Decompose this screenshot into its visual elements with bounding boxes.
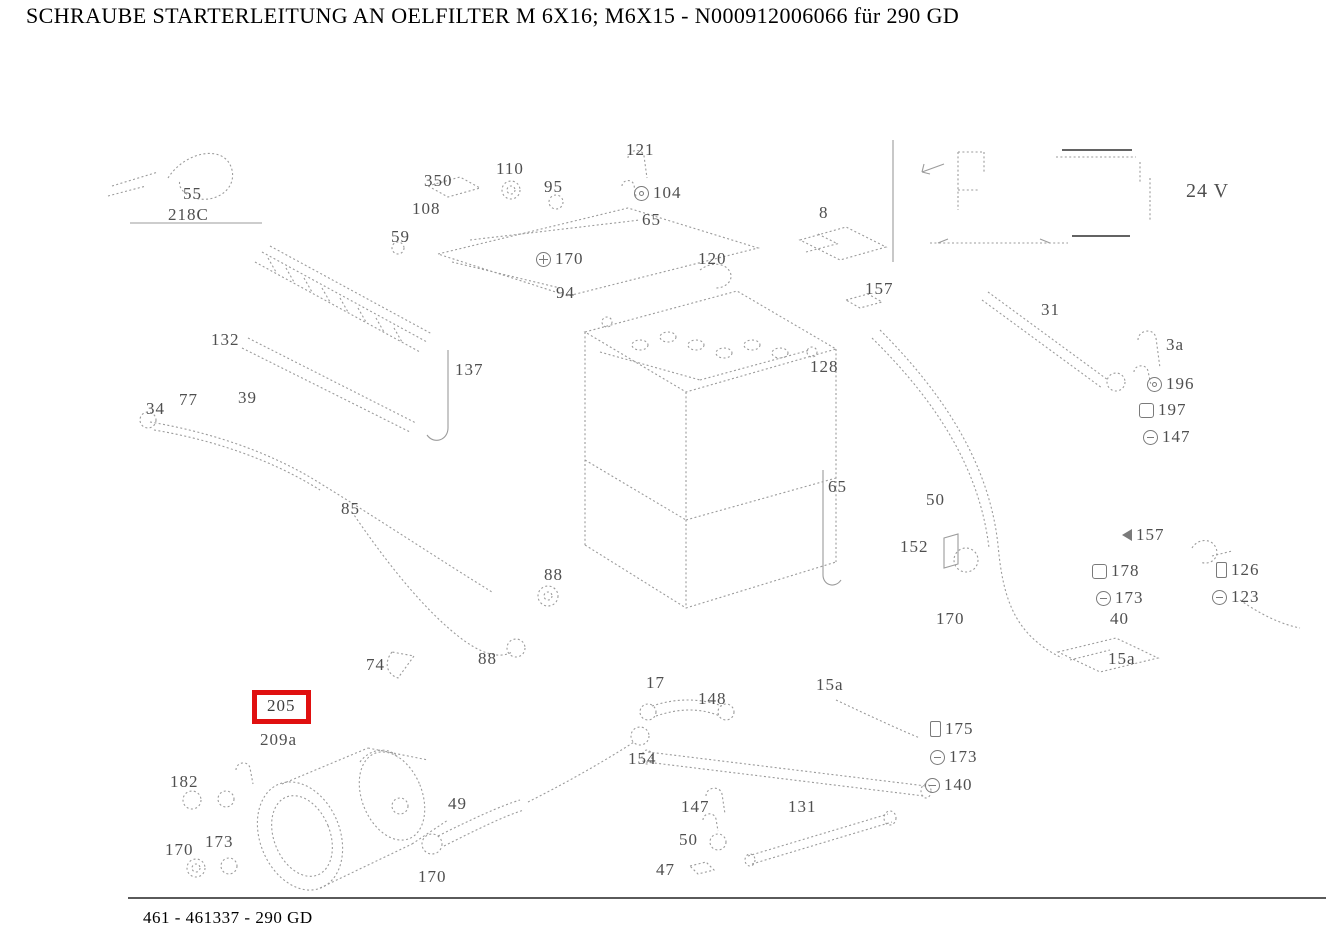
part-number-text: 218C bbox=[168, 206, 209, 225]
part-number-text: 88 bbox=[478, 650, 497, 669]
part-label-218c: 218C bbox=[168, 206, 209, 225]
part-label-65: 65 bbox=[828, 478, 847, 497]
washer2-icon bbox=[930, 750, 945, 765]
part-number-text: 170 bbox=[418, 868, 447, 887]
part-label-173: 173 bbox=[1096, 589, 1144, 608]
part-label-350: 350 bbox=[424, 172, 453, 191]
part-label-182: 182 bbox=[170, 773, 199, 792]
part-label-24-v: 24 V bbox=[1186, 180, 1229, 202]
part-label-175: 175 bbox=[930, 720, 974, 739]
part-number-text: 104 bbox=[653, 184, 682, 203]
part-label-170: 170 bbox=[536, 250, 584, 269]
part-label-3a: 3a bbox=[1166, 336, 1184, 355]
part-number-text: 148 bbox=[698, 690, 727, 709]
part-number-text: 88 bbox=[544, 566, 563, 585]
part-number-text: 132 bbox=[211, 331, 240, 350]
part-label-59: 59 bbox=[391, 228, 410, 247]
part-number-text: 77 bbox=[179, 391, 198, 410]
bolt-icon bbox=[1216, 562, 1227, 578]
part-label-74: 74 bbox=[366, 656, 385, 675]
part-label-147: 147 bbox=[1143, 428, 1191, 447]
part-number-text: 85 bbox=[341, 500, 360, 519]
part-number-text: 173 bbox=[205, 833, 234, 852]
part-number-text: 175 bbox=[945, 720, 974, 739]
part-label-95: 95 bbox=[544, 178, 563, 197]
part-number-text: 173 bbox=[1115, 589, 1144, 608]
part-label-110: 110 bbox=[496, 160, 524, 179]
part-number-text: 170 bbox=[936, 610, 965, 629]
part-label-120: 120 bbox=[698, 250, 727, 269]
part-label-209a: 209a bbox=[260, 731, 297, 750]
part-number-text: 39 bbox=[238, 389, 257, 408]
part-label-173: 173 bbox=[205, 833, 234, 852]
part-number-text: 50 bbox=[926, 491, 945, 510]
part-number-text: 31 bbox=[1041, 301, 1060, 320]
part-number-text: 24 V bbox=[1186, 180, 1229, 202]
part-number-text: 40 bbox=[1110, 610, 1129, 629]
part-number-text: 123 bbox=[1231, 588, 1260, 607]
washer2-icon bbox=[925, 778, 940, 793]
part-number-text: 49 bbox=[448, 795, 467, 814]
part-label-157: 157 bbox=[1122, 526, 1165, 545]
part-label-152: 152 bbox=[900, 538, 929, 557]
part-number-text: 34 bbox=[146, 400, 165, 419]
part-label-88: 88 bbox=[478, 650, 497, 669]
part-label-197: 197 bbox=[1139, 401, 1187, 420]
part-label-128: 128 bbox=[810, 358, 839, 377]
part-label-8: 8 bbox=[819, 204, 829, 223]
part-number-text: 15a bbox=[816, 676, 844, 695]
washer2-icon bbox=[1212, 590, 1227, 605]
part-number-text: 50 bbox=[679, 831, 698, 850]
part-label-170: 170 bbox=[936, 610, 965, 629]
part-label-17: 17 bbox=[646, 674, 665, 693]
part-number-text: 170 bbox=[165, 841, 194, 860]
part-number-text: 209a bbox=[260, 731, 297, 750]
part-number-text: 120 bbox=[698, 250, 727, 269]
part-label-173: 173 bbox=[930, 748, 978, 767]
washer2-icon bbox=[1143, 430, 1158, 445]
part-number-text: 126 bbox=[1231, 561, 1260, 580]
part-number-text: 55 bbox=[183, 185, 202, 204]
part-number-text: 140 bbox=[944, 776, 973, 795]
ground-icon bbox=[536, 252, 551, 267]
part-number-text: 147 bbox=[1162, 428, 1191, 447]
part-label-49: 49 bbox=[448, 795, 467, 814]
part-label-154: 154 bbox=[628, 750, 657, 769]
part-number-text: 196 bbox=[1166, 375, 1195, 394]
part-label-31: 31 bbox=[1041, 301, 1060, 320]
part-number-text: 152 bbox=[900, 538, 929, 557]
part-label-47: 47 bbox=[656, 861, 675, 880]
part-label-196: 196 bbox=[1147, 375, 1195, 394]
nut-icon bbox=[1092, 564, 1107, 579]
part-number-text: 3a bbox=[1166, 336, 1184, 355]
part-label-39: 39 bbox=[238, 389, 257, 408]
part-number-text: 205 bbox=[267, 697, 296, 716]
part-label-205[interactable]: 205 bbox=[252, 690, 311, 724]
part-number-text: 74 bbox=[366, 656, 385, 675]
exploded-parts-diagram: 55218C3501081109512110459170120815724 V9… bbox=[0, 0, 1326, 950]
part-labels-layer: 55218C3501081109512110459170120815724 V9… bbox=[0, 0, 1326, 950]
part-number-text: 15a bbox=[1108, 650, 1136, 669]
part-label-88: 88 bbox=[544, 566, 563, 585]
part-number-text: 65 bbox=[828, 478, 847, 497]
part-label-131: 131 bbox=[788, 798, 817, 817]
part-label-40: 40 bbox=[1110, 610, 1129, 629]
part-label-147: 147 bbox=[681, 798, 710, 817]
part-label-178: 178 bbox=[1092, 562, 1140, 581]
part-number-text: 8 bbox=[819, 204, 829, 223]
part-label-126: 126 bbox=[1216, 561, 1260, 580]
part-label-170: 170 bbox=[418, 868, 447, 887]
part-label-132: 132 bbox=[211, 331, 240, 350]
part-label-157: 157 bbox=[865, 280, 894, 299]
part-number-text: 128 bbox=[810, 358, 839, 377]
part-number-text: 94 bbox=[556, 284, 575, 303]
part-label-94: 94 bbox=[556, 284, 575, 303]
part-label-50: 50 bbox=[926, 491, 945, 510]
part-label-85: 85 bbox=[341, 500, 360, 519]
part-number-text: 121 bbox=[626, 141, 655, 160]
part-number-text: 65 bbox=[642, 211, 661, 230]
part-number-text: 147 bbox=[681, 798, 710, 817]
part-label-108: 108 bbox=[412, 200, 441, 219]
part-number-text: 197 bbox=[1158, 401, 1187, 420]
part-label-15a: 15a bbox=[1108, 650, 1136, 669]
nut-icon bbox=[1139, 403, 1154, 418]
part-number-text: 157 bbox=[1136, 526, 1165, 545]
part-number-text: 350 bbox=[424, 172, 453, 191]
footer-divider bbox=[128, 897, 1326, 899]
part-number-text: 110 bbox=[496, 160, 524, 179]
part-label-170: 170 bbox=[165, 841, 194, 860]
part-number-text: 173 bbox=[949, 748, 978, 767]
part-number-text: 157 bbox=[865, 280, 894, 299]
arrow-left-icon bbox=[1122, 529, 1132, 541]
part-number-text: 154 bbox=[628, 750, 657, 769]
part-number-text: 131 bbox=[788, 798, 817, 817]
part-number-text: 182 bbox=[170, 773, 199, 792]
part-number-text: 108 bbox=[412, 200, 441, 219]
part-number-text: 170 bbox=[555, 250, 584, 269]
part-label-104: 104 bbox=[634, 184, 682, 203]
bolt-icon bbox=[930, 721, 941, 737]
washer-icon bbox=[634, 186, 649, 201]
part-label-65: 65 bbox=[642, 211, 661, 230]
part-number-text: 178 bbox=[1111, 562, 1140, 581]
part-label-34: 34 bbox=[146, 400, 165, 419]
part-number-text: 47 bbox=[656, 861, 675, 880]
part-label-50: 50 bbox=[679, 831, 698, 850]
part-number-text: 95 bbox=[544, 178, 563, 197]
part-label-140: 140 bbox=[925, 776, 973, 795]
part-label-137: 137 bbox=[455, 361, 484, 380]
part-label-148: 148 bbox=[698, 690, 727, 709]
part-label-123: 123 bbox=[1212, 588, 1260, 607]
part-number-text: 137 bbox=[455, 361, 484, 380]
part-number-text: 59 bbox=[391, 228, 410, 247]
footer-reference: 461 - 461337 - 290 GD bbox=[143, 908, 313, 928]
part-label-121: 121 bbox=[626, 141, 655, 160]
washer-icon bbox=[1147, 377, 1162, 392]
part-number-text: 17 bbox=[646, 674, 665, 693]
washer2-icon bbox=[1096, 591, 1111, 606]
part-label-77: 77 bbox=[179, 391, 198, 410]
part-label-15a: 15a bbox=[816, 676, 844, 695]
part-label-55: 55 bbox=[183, 185, 202, 204]
